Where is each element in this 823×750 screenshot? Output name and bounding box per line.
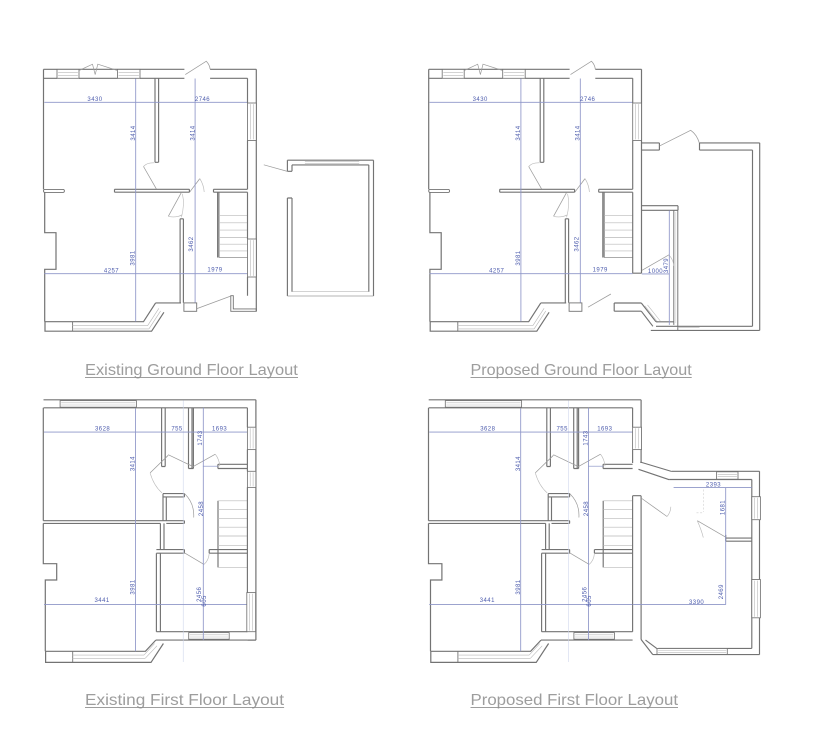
svg-text:Existing First Floor Layout: Existing First Floor Layout <box>85 692 285 709</box>
svg-text:Proposed Ground Floor Layout: Proposed Ground Floor Layout <box>471 362 693 379</box>
svg-text:3479: 3479 <box>664 258 670 273</box>
svg-text:2393: 2393 <box>706 483 721 489</box>
svg-text:1681: 1681 <box>721 500 727 515</box>
svg-text:3390: 3390 <box>689 600 704 606</box>
svg-text:1000: 1000 <box>648 269 663 275</box>
svg-text:Existing Ground Floor Layout: Existing Ground Floor Layout <box>85 362 298 379</box>
svg-text:Proposed First Floor Layout: Proposed First Floor Layout <box>471 692 679 709</box>
svg-text:2469: 2469 <box>719 584 725 599</box>
